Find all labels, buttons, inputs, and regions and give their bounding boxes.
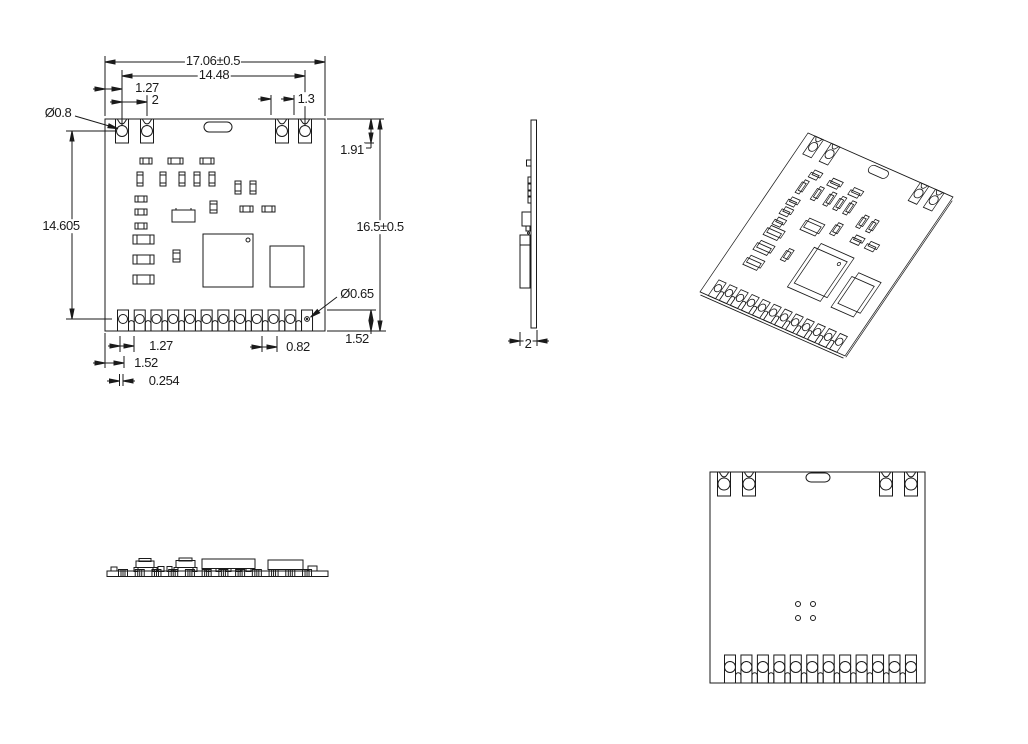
front-dimensions	[66, 56, 386, 386]
dim-overall-width: 17.06±0.5	[185, 54, 241, 68]
dim-pad-gap: 0.254	[148, 374, 181, 388]
dim-bottom-pad-pitch: 1.27	[148, 339, 174, 353]
front-view	[105, 119, 325, 331]
dim-top-hole-span: 14.48	[198, 68, 231, 82]
back-view	[710, 472, 925, 683]
dim-bottom-hole-diameter: Ø0.65	[339, 287, 374, 301]
dim-top-hole-diameter: Ø0.8	[44, 106, 73, 120]
bottom-edge-view	[107, 558, 328, 577]
technical-drawing: 17.06±0.5 14.48 1.27 2 1.3 Ø0.8 1.91 16.…	[0, 0, 1028, 744]
isometric-view	[698, 133, 954, 359]
dim-overall-height: 16.5±0.5	[355, 220, 404, 234]
dim-left-edge-to-pad: 1.52	[133, 356, 159, 370]
dim-vertical-hole-span: 14.605	[41, 219, 80, 233]
side-view	[520, 120, 537, 328]
dim-top-hole-pitch: 2	[151, 93, 160, 107]
dim-board-thickness: 2	[524, 337, 533, 351]
dim-right-hole-to-edge: 1.3	[297, 92, 316, 106]
dim-bottom-pad-width: 0.82	[285, 340, 311, 354]
dim-bottom-pad-height: 1.52	[344, 332, 370, 346]
dim-top-pad-height: 1.91	[339, 143, 365, 157]
drawing-canvas	[0, 0, 1028, 744]
